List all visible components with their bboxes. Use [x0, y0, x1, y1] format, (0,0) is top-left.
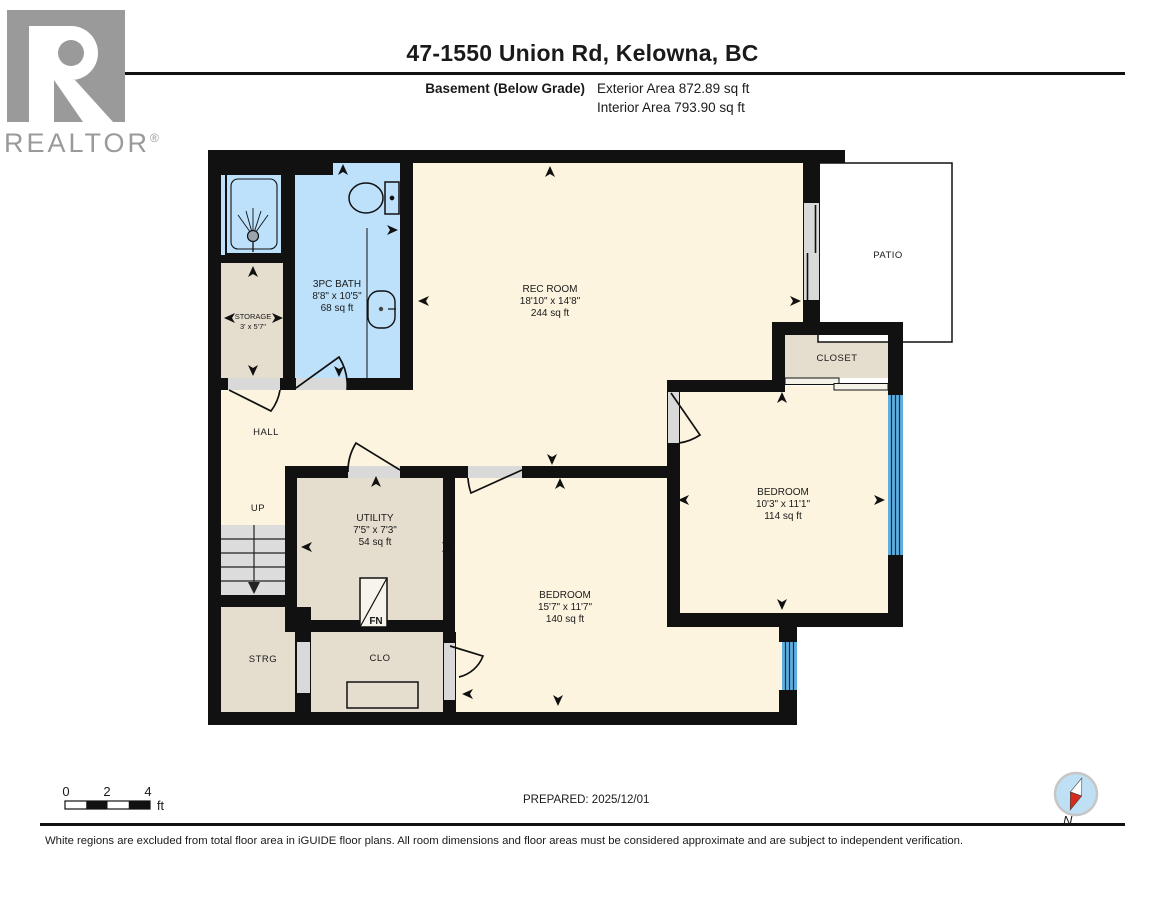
hall-label: HALL	[253, 427, 279, 438]
clo-label: CLO	[369, 653, 390, 664]
scale-tick-2: 2	[103, 784, 110, 799]
storage-dims: 3' x 5'7"	[240, 322, 266, 331]
rec-room-label: REC ROOM	[523, 284, 578, 295]
bedroom2-area: 114 sq ft	[764, 511, 802, 522]
storage-label: STORAGE	[235, 312, 272, 321]
scale-tick-4: 4	[144, 784, 151, 799]
rec-room-area: 244 sq ft	[531, 308, 570, 319]
bedroom2-label: BEDROOM	[757, 487, 809, 498]
strg-label: STRG	[249, 654, 277, 665]
scale-tick-0: 0	[62, 784, 69, 799]
window-bottom	[782, 642, 797, 690]
closet-label: CLOSET	[816, 353, 857, 364]
bedroom1-area: 140 sq ft	[546, 614, 585, 625]
utility-dims: 7'5" x 7'3"	[353, 525, 397, 536]
up-label: UP	[251, 503, 265, 514]
bedroom2-dims: 10'3" x 11'1"	[756, 499, 811, 510]
scale-bar: 0 2 4 ft	[62, 784, 164, 813]
utility-area: 54 sq ft	[359, 537, 392, 548]
realtor-logo-icon	[7, 10, 125, 122]
bath-area: 68 sq ft	[321, 303, 354, 314]
bedroom1-label: BEDROOM	[539, 590, 591, 601]
rec-room-dims: 18'10" x 14'8"	[520, 296, 581, 307]
bedroom1-dims: 15'7" x 11'7"	[538, 602, 593, 613]
bath-label: 3PC BATH	[313, 279, 361, 290]
toilet-icon	[349, 182, 399, 214]
patio-label: PATIO	[873, 250, 903, 261]
window-right	[888, 395, 903, 555]
utility-label: UTILITY	[356, 513, 394, 524]
floor-plan-page: 47-1550 Union Rd, Kelowna, BC Basement (…	[0, 0, 1165, 900]
scale-unit: ft	[157, 799, 164, 813]
furnace-label: FN	[369, 616, 382, 627]
bath-dims: 8'8" x 10'5"	[312, 291, 362, 302]
compass-icon: N	[1055, 773, 1097, 828]
room-clo-floor	[310, 632, 443, 712]
floor-plan-svg: 3PC BATH 8'8" x 10'5" 68 sq ft STORAGE 3…	[0, 0, 1165, 900]
compass-n-label: N	[1063, 813, 1073, 828]
stairs-icon	[221, 525, 285, 595]
